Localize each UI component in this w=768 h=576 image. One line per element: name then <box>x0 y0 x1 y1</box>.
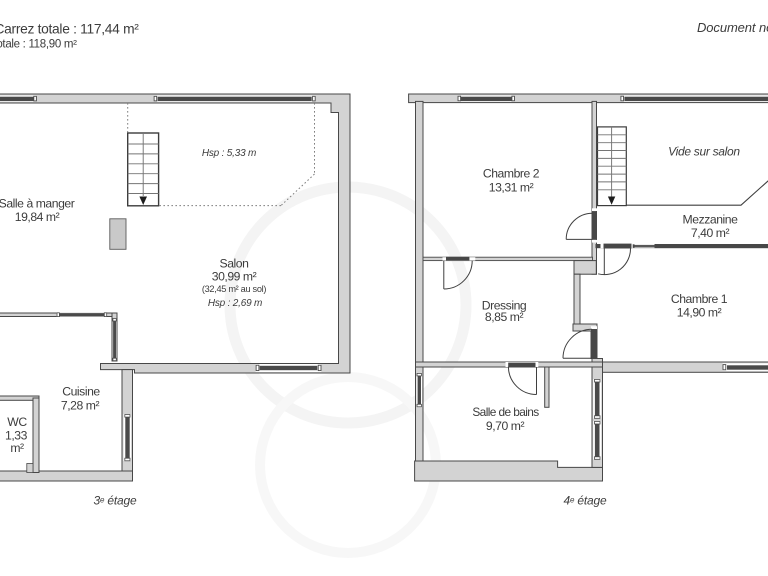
svg-text:3e étage: 3e étage <box>94 494 137 508</box>
svg-text:13,31 m²: 13,31 m² <box>489 181 534 195</box>
svg-text:Mezzanine: Mezzanine <box>683 213 739 227</box>
svg-text:19,84 m²: 19,84 m² <box>15 210 60 224</box>
svg-text:Cuisine: Cuisine <box>62 385 100 399</box>
svg-text:Surface totale : 118,90 m²: Surface totale : 118,90 m² <box>0 39 77 51</box>
svg-text:Salle à manger: Salle à manger <box>0 197 75 211</box>
svg-text:14,90 m²: 14,90 m² <box>677 306 722 320</box>
svg-text:Document non contractuel: Document non contractuel <box>697 20 768 35</box>
svg-text:4e étage: 4e étage <box>564 494 607 508</box>
svg-text:Chambre 2: Chambre 2 <box>483 167 540 181</box>
svg-text:m²: m² <box>10 441 24 455</box>
svg-text:Surface Carrez totale : 117,44: Surface Carrez totale : 117,44 m² <box>0 22 139 37</box>
svg-text:Vide sur salon: Vide sur salon <box>668 145 740 159</box>
svg-text:Salon: Salon <box>220 257 249 271</box>
svg-text:Chambre 1: Chambre 1 <box>671 292 728 306</box>
svg-text:Hsp : 5,33 m: Hsp : 5,33 m <box>202 148 256 159</box>
svg-text:WC: WC <box>7 415 27 429</box>
svg-text:8,85 m²: 8,85 m² <box>485 310 524 324</box>
svg-text:7,28 m²: 7,28 m² <box>61 399 100 413</box>
svg-text:9,70 m²: 9,70 m² <box>486 419 525 433</box>
svg-text:Salle de bains: Salle de bains <box>472 405 539 419</box>
svg-text:Hsp : 2,69 m: Hsp : 2,69 m <box>208 298 262 309</box>
svg-text:30,99 m²: 30,99 m² <box>212 270 257 284</box>
svg-text:(32,45 m² au sol): (32,45 m² au sol) <box>202 284 267 294</box>
svg-text:7,40 m²: 7,40 m² <box>691 226 730 240</box>
